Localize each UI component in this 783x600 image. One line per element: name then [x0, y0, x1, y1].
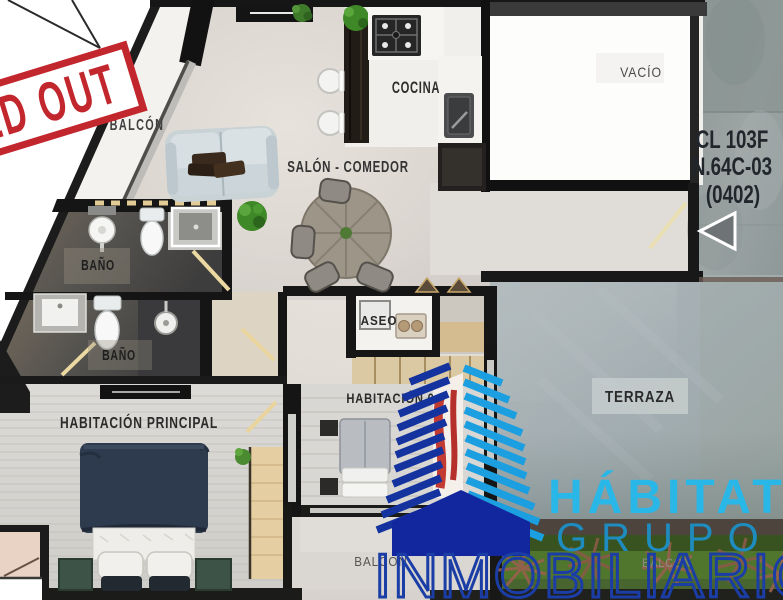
svg-text:VACÍO: VACÍO [620, 64, 662, 80]
svg-text:CL 103F: CL 103F [696, 125, 769, 153]
svg-text:N.64C-03: N.64C-03 [692, 152, 772, 180]
svg-text:INMOBILIARIO: INMOBILIARIO [374, 542, 783, 600]
svg-text:SALÓN - COMEDOR: SALÓN - COMEDOR [287, 156, 408, 176]
svg-text:HABITACIÓN PRINCIPAL: HABITACIÓN PRINCIPAL [60, 412, 218, 431]
svg-text:(0402): (0402) [706, 180, 760, 208]
svg-text:BAÑO: BAÑO [102, 346, 136, 363]
svg-text:TERRAZA: TERRAZA [605, 389, 675, 406]
svg-text:BAÑO: BAÑO [81, 256, 115, 273]
svg-text:ASEO: ASEO [361, 313, 398, 328]
svg-text:COCINA: COCINA [392, 79, 440, 98]
